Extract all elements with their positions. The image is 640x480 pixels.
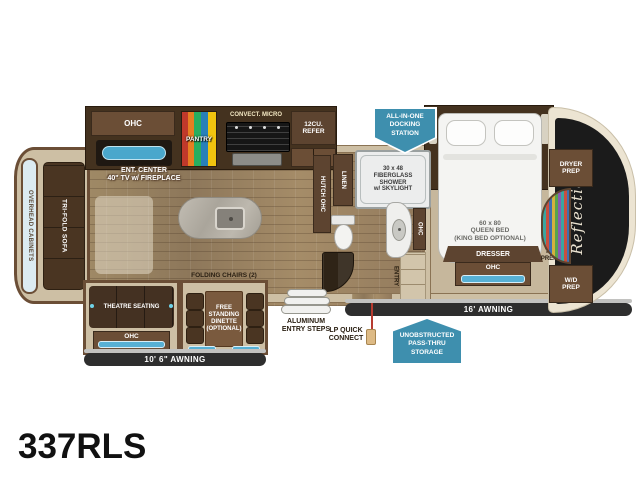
- dresser-label: DRESSER: [476, 251, 510, 258]
- theatre-window: [98, 341, 165, 348]
- wd-prep: W/D PREP: [549, 265, 593, 303]
- model-label: 337RLS: [18, 427, 146, 467]
- theatre-seating: THEATRE SEATING: [89, 286, 174, 328]
- convect-micro-label: CONVECT. MICRO: [220, 112, 292, 118]
- shower-label: 30 x 48 FIBERGLASS SHOWER w/ SKYLIGHT: [374, 166, 413, 194]
- folding-chair-icon: [186, 327, 204, 344]
- floorplan: OVERHEAD CABINETS TRI-FOLD SOFA OHC PANT…: [0, 0, 640, 480]
- stove-knob: [263, 126, 266, 129]
- overhead-cabinets-label: OVERHEAD CABINETS: [26, 190, 33, 261]
- comforter-fold: [443, 154, 537, 160]
- stove-icon: [226, 122, 290, 152]
- awning-right-label: 16' AWNING: [464, 305, 514, 314]
- ent-center-tv: [96, 140, 172, 166]
- bedroom-steps: [400, 252, 426, 300]
- overhead-cabinets: OVERHEAD CABINETS: [21, 158, 38, 294]
- wd-prep-label: W/D PREP: [562, 277, 580, 292]
- vanity-sink: [386, 202, 412, 258]
- cap-accent: [592, 118, 629, 147]
- hutch-ohc-label: HUTCH OHC: [319, 176, 325, 212]
- oven-icon: [232, 153, 282, 166]
- dinette-slide: FREE STANDING DINETTE (OPTIONAL): [180, 280, 268, 355]
- island-sink-icon: [215, 207, 245, 230]
- stove-knob: [249, 126, 252, 129]
- tri-fold-sofa-label: TRI-FOLD SOFA: [60, 199, 67, 253]
- entry-step: [281, 305, 331, 314]
- island-faucet: [229, 217, 233, 221]
- theatre-ohc-label: OHC: [94, 333, 169, 340]
- folding-chair-icon: [186, 293, 204, 310]
- theatre-seating-label: THEATRE SEATING: [104, 304, 160, 310]
- folding-chair-icon: [186, 310, 204, 327]
- sink-drain: [398, 228, 401, 231]
- vanity-ohc-label: OHC: [417, 222, 423, 235]
- kitchen-ohc-label: OHC: [124, 119, 142, 128]
- lp-nozzle-icon: [366, 329, 376, 345]
- tv-screen: [102, 146, 166, 160]
- linen-cabinet: LINEN: [333, 154, 353, 206]
- entry-label: ENTRY: [393, 266, 399, 286]
- dresser-window: [461, 275, 525, 283]
- dryer-prep-label: DRYER PREP: [560, 161, 583, 176]
- refrigerator-label-box: 12CU. REFER: [291, 111, 336, 145]
- dresser-ohc: OHC: [455, 262, 531, 286]
- pantry: PANTRY: [181, 111, 217, 167]
- pass-thru-badge-fill: UNOBSTRUCTED PASS-THRU STORAGE: [393, 319, 461, 363]
- queen-bed: 60 x 80 QUEEN BED (KING BED OPTIONAL): [438, 113, 542, 263]
- bed-label: 60 x 80 QUEEN BED (KING BED OPTIONAL): [439, 220, 541, 242]
- pantry-label: PANTRY: [186, 136, 212, 143]
- sink-basin-icon: [392, 219, 406, 241]
- dinette-table: FREE STANDING DINETTE (OPTIONAL): [205, 291, 243, 347]
- awning-left: 10' 6" AWNING: [84, 353, 266, 366]
- dresser: DRESSER: [443, 246, 543, 262]
- awning-left-label: 10' 6" AWNING: [144, 355, 205, 364]
- entry-step: [287, 289, 327, 297]
- awning-right: 16' AWNING: [345, 303, 632, 316]
- entry-label-wrap: ENTRY: [390, 256, 401, 296]
- folding-chair-icon: [246, 293, 264, 310]
- linen-label: LINEN: [340, 171, 346, 189]
- dresser-ohc-label: OHC: [456, 264, 530, 271]
- shower: 30 x 48 FIBERGLASS SHOWER w/ SKYLIGHT: [355, 150, 431, 209]
- theatre-slide: THEATRE SEATING OHC: [83, 280, 180, 355]
- stove-knob: [277, 126, 280, 129]
- entry-step: [284, 297, 330, 305]
- theatre-ohc: OHC: [93, 331, 170, 351]
- docking-station-label: ALL-IN-ONE DOCKING STATION: [375, 109, 435, 138]
- cupholder-icon: [90, 304, 94, 308]
- area-rug: [95, 196, 153, 274]
- toilet-bowl-icon: [334, 224, 353, 250]
- folding-chairs-label: FOLDING CHAIRS (2): [176, 272, 272, 279]
- pass-thru-badge: UNOBSTRUCTED PASS-THRU STORAGE: [391, 317, 463, 365]
- kitchen-island: [178, 197, 262, 239]
- pillow-icon: [494, 120, 534, 146]
- ent-center-label: ENT. CENTER 40" TV w/ FIREPLACE: [78, 167, 210, 183]
- kitchen-ohc: OHC: [91, 111, 175, 136]
- dryer-prep: DRYER PREP: [549, 149, 593, 187]
- pass-thru-label: UNOBSTRUCTED PASS-THRU STORAGE: [393, 319, 461, 357]
- cupholder-icon: [169, 304, 173, 308]
- hutch-ohc: HUTCH OHC: [313, 155, 331, 233]
- stove-knob: [235, 126, 238, 129]
- refer-label: 12CU. REFER: [302, 121, 324, 136]
- vanity-ohc: OHC: [413, 208, 426, 250]
- kitchen-slide: OHC PANTRY CONVECT. MICRO 12CU. REFER: [85, 106, 337, 170]
- lp-quick-connect-label: LP QUICK CONNECT: [320, 327, 372, 343]
- pillow-icon: [446, 120, 486, 146]
- dinette-label: FREE STANDING DINETTE (OPTIONAL): [207, 305, 242, 333]
